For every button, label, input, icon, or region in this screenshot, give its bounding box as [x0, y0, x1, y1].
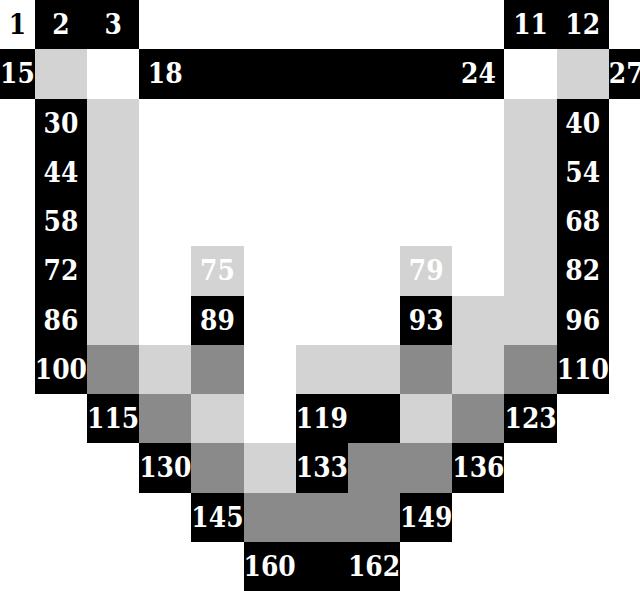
grid-cell-r10-c7[interactable] [348, 493, 400, 542]
grid-cell-r1-c0[interactable]: 15 [0, 49, 35, 98]
grid-cell-r8-c4[interactable] [191, 394, 243, 443]
cell-number-label: 27 [609, 60, 640, 87]
grid-cell-r7-c4[interactable] [191, 345, 243, 394]
grid-cell-r10-c6[interactable] [296, 493, 348, 542]
grid-cell-r7-c6[interactable] [296, 345, 348, 394]
grid-cell-r6-c9[interactable] [452, 296, 504, 345]
cell-number-label: 93 [409, 307, 444, 334]
grid-cell-r11-c10[interactable] [504, 542, 556, 591]
grid-cell-r2-c6[interactable] [296, 99, 348, 148]
grid-cell-r3-c1[interactable]: 44 [35, 148, 87, 197]
cell-number-label: 40 [565, 110, 600, 137]
grid-cell-r7-c5[interactable] [244, 345, 296, 394]
cell-number-label: 110 [557, 356, 609, 383]
grid-cell-r9-c11[interactable] [557, 443, 609, 492]
grid-cell-r6-c3[interactable] [139, 296, 191, 345]
cell-number-label: 133 [296, 454, 348, 481]
grid-cell-r6-c8[interactable]: 93 [400, 296, 452, 345]
cell-number-label: 96 [565, 307, 600, 334]
grid-cell-r8-c1[interactable] [35, 394, 87, 443]
grid-cell-r0-c3[interactable] [139, 0, 191, 49]
grid-cell-r4-c8[interactable] [400, 197, 452, 246]
grid-cell-r5-c8[interactable]: 79 [400, 246, 452, 295]
cell-number-label: 44 [43, 159, 78, 186]
grid-cell-r3-c8[interactable] [400, 148, 452, 197]
grid-cell-r11-c2[interactable] [87, 542, 139, 591]
grid-cell-r11-c7[interactable]: 162 [348, 542, 400, 591]
grid-cell-r5-c6[interactable] [296, 246, 348, 295]
grid-cell-r3-c0[interactable] [0, 148, 35, 197]
grid-cell-r4-c4[interactable] [191, 197, 243, 246]
grid-cell-r9-c0[interactable] [0, 443, 35, 492]
grid-cell-r0-c6[interactable] [296, 0, 348, 49]
grid-cell-r5-c10[interactable] [504, 246, 556, 295]
grid-cell-r0-c2[interactable]: 3 [87, 0, 139, 49]
grid-cell-r2-c9[interactable] [452, 99, 504, 148]
grid-cell-r0-c10[interactable]: 11 [504, 0, 556, 49]
grid-cell-r1-c7[interactable] [348, 49, 400, 98]
cell-number-label: 79 [409, 257, 444, 284]
cell-number-label: 1 [9, 11, 26, 38]
grid-cell-r5-c0[interactable] [0, 246, 35, 295]
grid-cell-r7-c3[interactable] [139, 345, 191, 394]
grid-cell-r10-c4[interactable]: 145 [191, 493, 243, 542]
grid-cell-r1-c4[interactable] [191, 49, 243, 98]
grid-cell-r11-c1[interactable] [35, 542, 87, 591]
grid-cell-r0-c12[interactable] [609, 0, 640, 49]
cell-number-label: 115 [87, 405, 139, 432]
grid-cell-r3-c12[interactable] [609, 148, 640, 197]
grid-cell-r4-c7[interactable] [348, 197, 400, 246]
grid-cell-r5-c4[interactable]: 75 [191, 246, 243, 295]
grid-cell-r8-c7[interactable] [348, 394, 400, 443]
grid-cell-r10-c10[interactable] [504, 493, 556, 542]
grid-cell-r11-c8[interactable] [400, 542, 452, 591]
cell-number-label: 24 [461, 60, 496, 87]
grid-cell-r4-c11[interactable]: 68 [557, 197, 609, 246]
cell-number-label: 119 [296, 405, 348, 432]
cell-number-label: 130 [139, 454, 191, 481]
grid-cell-r4-c10[interactable] [504, 197, 556, 246]
cell-number-label: 149 [400, 504, 452, 531]
grid-cell-r0-c8[interactable] [400, 0, 452, 49]
grid-cell-r3-c6[interactable] [296, 148, 348, 197]
grid-cell-r9-c3[interactable]: 130 [139, 443, 191, 492]
grid-cell-r6-c10[interactable] [504, 296, 556, 345]
grid-cell-r2-c12[interactable] [609, 99, 640, 148]
grid-cell-r0-c4[interactable] [191, 0, 243, 49]
grid-cell-r2-c4[interactable] [191, 99, 243, 148]
grid-cell-r0-c7[interactable] [348, 0, 400, 49]
grid-cell-r10-c9[interactable] [452, 493, 504, 542]
grid-cell-r7-c8[interactable] [400, 345, 452, 394]
grid-cell-r9-c1[interactable] [35, 443, 87, 492]
grid-cell-r6-c1[interactable]: 86 [35, 296, 87, 345]
grid-cell-r2-c5[interactable] [244, 99, 296, 148]
grid-cell-r8-c10[interactable]: 123 [504, 394, 556, 443]
grid-cell-r9-c7[interactable] [348, 443, 400, 492]
cell-number-label: 89 [200, 307, 235, 334]
grid-cell-r2-c0[interactable] [0, 99, 35, 148]
grid-cell-r0-c11[interactable]: 12 [557, 0, 609, 49]
grid-cell-r10-c11[interactable] [557, 493, 609, 542]
grid-cell-r8-c2[interactable]: 115 [87, 394, 139, 443]
grid-cell-r2-c2[interactable] [87, 99, 139, 148]
grid-cell-r10-c1[interactable] [35, 493, 87, 542]
grid-cell-r8-c0[interactable] [0, 394, 35, 443]
grid-cell-r4-c5[interactable] [244, 197, 296, 246]
grid-cell-r5-c1[interactable]: 72 [35, 246, 87, 295]
cell-number-label: 162 [348, 553, 400, 580]
grid-cell-r10-c5[interactable] [244, 493, 296, 542]
grid-cell-r4-c0[interactable] [0, 197, 35, 246]
grid-cell-r10-c12[interactable] [609, 493, 640, 542]
grid-cell-r11-c6[interactable] [296, 542, 348, 591]
grid-cell-r6-c5[interactable] [244, 296, 296, 345]
cell-number-label: 72 [43, 257, 78, 284]
grid-cell-r3-c7[interactable] [348, 148, 400, 197]
grid-cell-r11-c3[interactable] [139, 542, 191, 591]
grid-cell-r2-c11[interactable]: 40 [557, 99, 609, 148]
grid-cell-r5-c12[interactable] [609, 246, 640, 295]
grid-cell-r10-c0[interactable] [0, 493, 35, 542]
grid-cell-r2-c3[interactable] [139, 99, 191, 148]
cell-number-label: 136 [452, 454, 504, 481]
grid-cell-r2-c8[interactable] [400, 99, 452, 148]
grid-cell-r9-c8[interactable] [400, 443, 452, 492]
grid-cell-r8-c11[interactable] [557, 394, 609, 443]
grid-cell-r11-c0[interactable] [0, 542, 35, 591]
grid-cell-r5-c2[interactable] [87, 246, 139, 295]
grid-cell-r3-c4[interactable] [191, 148, 243, 197]
cell-number-label: 145 [191, 504, 243, 531]
grid-cell-r6-c0[interactable] [0, 296, 35, 345]
grid-cell-r7-c12[interactable] [609, 345, 640, 394]
cell-number-label: 123 [504, 405, 556, 432]
grid-cell-r1-c10[interactable] [504, 49, 556, 98]
grid-cell-r8-c8[interactable] [400, 394, 452, 443]
grid-cell-r1-c8[interactable] [400, 49, 452, 98]
grid-cell-r8-c5[interactable] [244, 394, 296, 443]
grid-cell-r6-c6[interactable] [296, 296, 348, 345]
cell-number-label: 160 [244, 553, 296, 580]
grid-cell-r11-c9[interactable] [452, 542, 504, 591]
grid-cell-r5-c5[interactable] [244, 246, 296, 295]
grid-cell-r1-c9[interactable]: 24 [452, 49, 504, 98]
cell-number-label: 86 [43, 307, 78, 334]
grid-cell-r4-c3[interactable] [139, 197, 191, 246]
cell-number-label: 18 [148, 60, 183, 87]
cell-number-label: 54 [565, 159, 600, 186]
grid-cell-r4-c12[interactable] [609, 197, 640, 246]
grid-cell-r5-c11[interactable]: 82 [557, 246, 609, 295]
grid-cell-r9-c6[interactable]: 133 [296, 443, 348, 492]
grid-cell-r7-c7[interactable] [348, 345, 400, 394]
grid-cell-r5-c9[interactable] [452, 246, 504, 295]
grid-cell-r9-c4[interactable] [191, 443, 243, 492]
grid-cell-r7-c2[interactable] [87, 345, 139, 394]
grid-cell-r4-c2[interactable] [87, 197, 139, 246]
grid-cell-r1-c6[interactable] [296, 49, 348, 98]
grid-cell-r11-c11[interactable] [557, 542, 609, 591]
cell-number-label: 2 [52, 11, 69, 38]
grid-cell-r2-c7[interactable] [348, 99, 400, 148]
grid-cell-r8-c3[interactable] [139, 394, 191, 443]
grid-cell-r2-c1[interactable]: 30 [35, 99, 87, 148]
grid-cell-r3-c5[interactable] [244, 148, 296, 197]
grid-cell-r11-c4[interactable] [191, 542, 243, 591]
grid-cell-r10-c8[interactable]: 149 [400, 493, 452, 542]
grid-cell-r8-c12[interactable] [609, 394, 640, 443]
cell-number-label: 12 [565, 11, 600, 38]
grid-cell-r6-c11[interactable]: 96 [557, 296, 609, 345]
cell-number-label: 30 [43, 110, 78, 137]
grid-cell-r4-c9[interactable] [452, 197, 504, 246]
grid-cell-r9-c12[interactable] [609, 443, 640, 492]
grid-cell-r3-c10[interactable] [504, 148, 556, 197]
grid-cell-r0-c0[interactable]: 1 [0, 0, 35, 49]
grid-cell-r3-c9[interactable] [452, 148, 504, 197]
grid-cell-r7-c10[interactable] [504, 345, 556, 394]
grid-cell-r11-c12[interactable] [609, 542, 640, 591]
grid-cell-r10-c3[interactable] [139, 493, 191, 542]
grid-cell-r1-c1[interactable] [35, 49, 87, 98]
grid-cell-r1-c5[interactable] [244, 49, 296, 98]
grid-cell-r8-c9[interactable] [452, 394, 504, 443]
grid-cell-r3-c11[interactable]: 54 [557, 148, 609, 197]
grid-cell-r0-c5[interactable] [244, 0, 296, 49]
grid-cell-r5-c7[interactable] [348, 246, 400, 295]
grid-cell-r5-c3[interactable] [139, 246, 191, 295]
grid-cell-r7-c0[interactable] [0, 345, 35, 394]
grid-cell-r3-c2[interactable] [87, 148, 139, 197]
grid-cell-r7-c9[interactable] [452, 345, 504, 394]
grid-cell-r1-c2[interactable] [87, 49, 139, 98]
grid-cell-r0-c9[interactable] [452, 0, 504, 49]
grid-cell-r9-c10[interactable] [504, 443, 556, 492]
grid-cell-r11-c5[interactable]: 160 [244, 542, 296, 591]
cell-number-label: 100 [35, 356, 87, 383]
cell-number-label: 58 [43, 208, 78, 235]
grid-cell-r6-c12[interactable] [609, 296, 640, 345]
grid-cell-r2-c10[interactable] [504, 99, 556, 148]
grid-cell-r6-c2[interactable] [87, 296, 139, 345]
grid-cell-r3-c3[interactable] [139, 148, 191, 197]
grid-cell-r4-c1[interactable]: 58 [35, 197, 87, 246]
grid-cell-r1-c11[interactable] [557, 49, 609, 98]
grid-cell-r7-c11[interactable]: 110 [557, 345, 609, 394]
grid-cell-r6-c4[interactable]: 89 [191, 296, 243, 345]
grid-cell-r8-c6[interactable]: 119 [296, 394, 348, 443]
grid-cell-r10-c2[interactable] [87, 493, 139, 542]
grid-cell-r0-c1[interactable]: 2 [35, 0, 87, 49]
cell-number-label: 82 [565, 257, 600, 284]
cell-number-label: 11 [513, 11, 548, 38]
grid-cell-r1-c3[interactable]: 18 [139, 49, 191, 98]
cell-number-label: 75 [200, 257, 235, 284]
grid-cell-r4-c6[interactable] [296, 197, 348, 246]
puzzle-grid: 1231112151824273040445458687275798286899… [0, 0, 640, 591]
grid-cell-r9-c9[interactable]: 136 [452, 443, 504, 492]
grid-cell-r1-c12[interactable]: 27 [609, 49, 640, 98]
grid-cell-r7-c1[interactable]: 100 [35, 345, 87, 394]
cell-number-label: 3 [104, 11, 121, 38]
grid-cell-r9-c2[interactable] [87, 443, 139, 492]
grid-cell-r6-c7[interactable] [348, 296, 400, 345]
grid-cell-r9-c5[interactable] [244, 443, 296, 492]
cell-number-label: 68 [565, 208, 600, 235]
cell-number-label: 15 [0, 60, 35, 87]
